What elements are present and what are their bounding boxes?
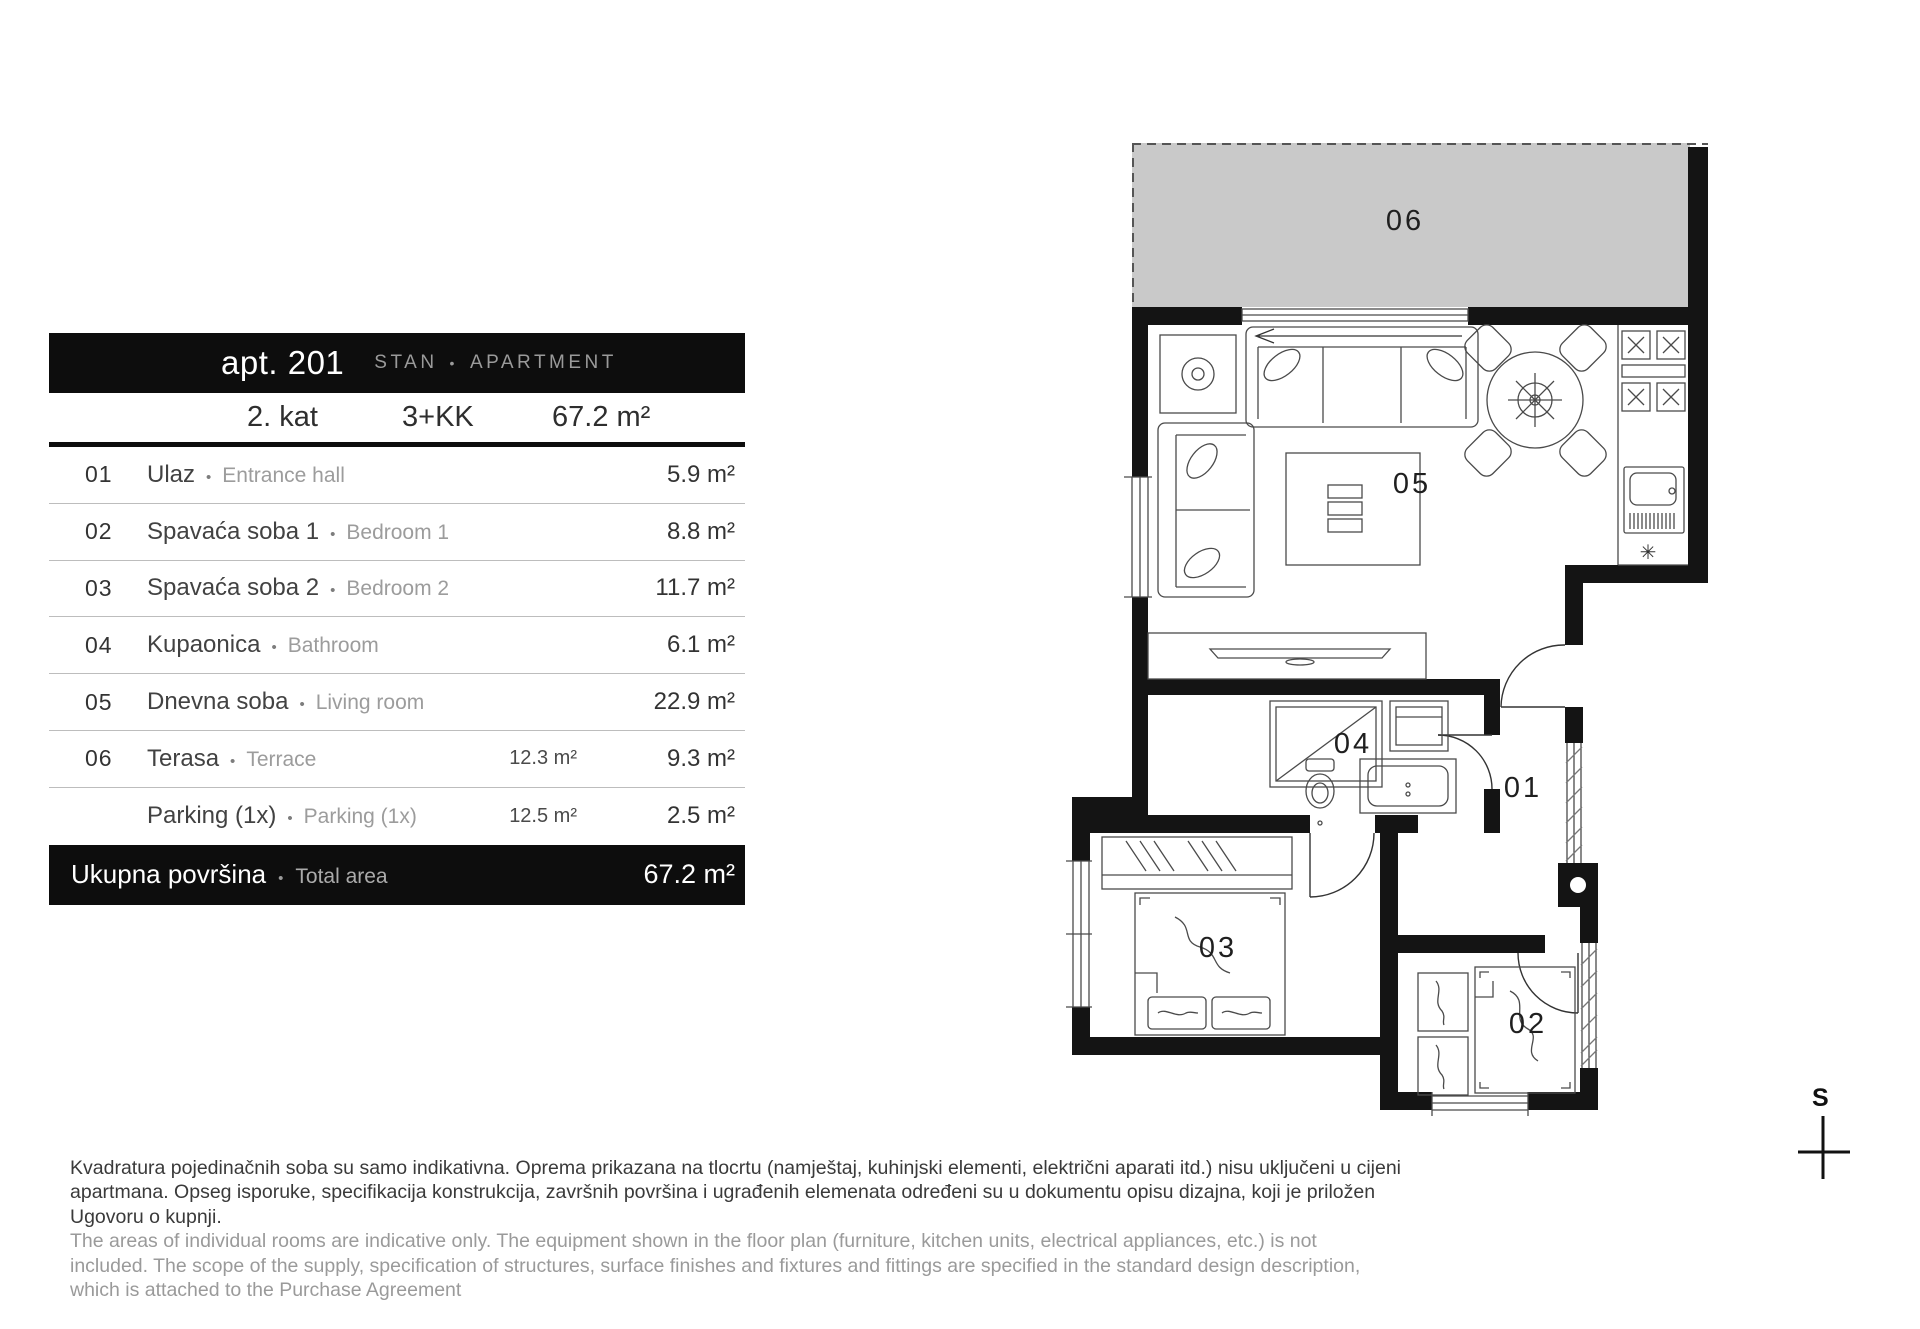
room-name-hr: Dnevna soba xyxy=(147,688,288,716)
room-area: 8.8 m² xyxy=(625,518,735,546)
apartment-type-en: APARTMENT xyxy=(470,352,617,374)
room-name-hr: Terasa xyxy=(147,745,219,773)
compass-cross-icon xyxy=(1790,1084,1880,1204)
room-number: 02 xyxy=(85,518,147,545)
room-area: 11.7 m² xyxy=(625,574,735,602)
table-row-terrace: 06 Terasa•Terrace 12.3 m² 9.3 m² xyxy=(49,731,745,788)
room-name-en: Terrace xyxy=(246,748,316,772)
room-area: 6.1 m² xyxy=(625,631,735,659)
room-name-en: Entrance hall xyxy=(222,464,345,488)
apartment-type-hr: STAN xyxy=(374,352,437,374)
bullet-separator: • xyxy=(299,696,304,713)
dishwasher-icon: ✳ xyxy=(1640,542,1657,564)
room-gross-area: 12.3 m² xyxy=(467,747,577,770)
hall-window xyxy=(1565,743,1583,863)
room-area: 22.9 m² xyxy=(625,688,735,716)
room-name-en: Living room xyxy=(316,691,425,715)
wall-column xyxy=(1570,877,1586,893)
total-area-bar: Ukupna površina•Total area 67.2 m² xyxy=(49,845,745,905)
room-name-en: Parking (1x) xyxy=(304,805,417,829)
living-room-window xyxy=(1124,477,1152,597)
room-name-hr: Ulaz xyxy=(147,461,195,489)
bullet-separator: • xyxy=(330,526,335,543)
floor-plan: ✳ xyxy=(1060,135,1760,1145)
room-number: 04 xyxy=(85,632,147,659)
room-name-en: Bedroom 2 xyxy=(346,577,449,601)
plant-table xyxy=(1160,335,1236,413)
room-name-hr: Parking (1x) xyxy=(147,802,276,830)
label-bedroom1: 02 xyxy=(1509,1008,1547,1040)
bedroom1-window xyxy=(1580,943,1598,1068)
total-label-hr: Ukupna površina xyxy=(71,859,266,890)
table-row-parking: Parking (1x)•Parking (1x) 12.5 m² 2.5 m² xyxy=(49,788,745,845)
table-row-bedroom1: 02 Spavaća soba 1•Bedroom 1 8.8 m² xyxy=(49,504,745,561)
room-area: 9.3 m² xyxy=(625,745,735,773)
bedroom2-window xyxy=(1066,861,1092,1007)
room-area: 5.9 m² xyxy=(625,461,735,489)
total-area-summary: 67.2 m² xyxy=(552,401,650,434)
table-row-entrance: 01 Ulaz•Entrance hall 5.9 m² xyxy=(49,447,745,504)
doors xyxy=(1310,645,1578,1013)
sofa-large xyxy=(1246,327,1478,427)
apartment-info-panel: apt. 201 STAN • APARTMENT 2. kat 3+KK 67… xyxy=(49,333,745,905)
total-area-value: 67.2 m² xyxy=(605,859,735,890)
layout-label: 3+KK xyxy=(402,401,552,434)
bullet-separator: • xyxy=(206,469,211,486)
room-name-hr: Spavaća soba 1 xyxy=(147,518,319,546)
disclaimer-hr: Kvadratura pojedinačnih soba su samo ind… xyxy=(70,1156,1470,1229)
label-bathroom: 04 xyxy=(1334,728,1372,760)
room-name-hr: Spavaća soba 2 xyxy=(147,574,319,602)
room-name-hr: Kupaonica xyxy=(147,631,260,659)
apartment-type: STAN • APARTMENT xyxy=(374,352,617,374)
bullet-separator: • xyxy=(230,753,235,770)
disclaimer-en: The areas of individual rooms are indica… xyxy=(70,1229,1470,1302)
tv-bench xyxy=(1148,633,1426,679)
disclaimer: Kvadratura pojedinačnih soba su samo ind… xyxy=(70,1156,1470,1302)
sofa-small xyxy=(1158,423,1254,597)
room-number: 06 xyxy=(85,745,147,772)
bed-bedroom3 xyxy=(1135,893,1285,1035)
bullet-separator: • xyxy=(271,639,276,656)
room-name-en: Bedroom 1 xyxy=(346,521,449,545)
bedroom1-door xyxy=(1518,953,1578,1013)
bullet-separator: • xyxy=(330,582,335,599)
bullet-separator: • xyxy=(450,355,458,371)
kitchen-units: ✳ xyxy=(1618,325,1688,565)
label-bedroom2: 03 xyxy=(1199,932,1237,964)
apartment-number: apt. 201 xyxy=(221,344,344,382)
apartment-header-bar: apt. 201 STAN • APARTMENT xyxy=(49,333,745,393)
room-table: 01 Ulaz•Entrance hall 5.9 m² 02 Spavaća … xyxy=(49,447,745,845)
room-gross-area: 12.5 m² xyxy=(467,805,577,828)
room-name-en: Bathroom xyxy=(288,634,379,658)
entrance-door xyxy=(1501,645,1565,707)
floor-label: 2. kat xyxy=(247,401,402,434)
apartment-summary-row: 2. kat 3+KK 67.2 m² xyxy=(49,393,745,447)
room-number: 01 xyxy=(85,461,147,488)
label-terrace: 06 xyxy=(1386,205,1424,237)
label-living-room: 05 xyxy=(1393,468,1431,500)
table-row-bathroom: 04 Kupaonica•Bathroom 6.1 m² xyxy=(49,617,745,674)
toilet xyxy=(1306,759,1334,825)
room-number: 03 xyxy=(85,575,147,602)
sliding-door xyxy=(1242,309,1468,343)
wardrobe-bed3 xyxy=(1102,837,1292,889)
wardrobe-bed2 xyxy=(1418,973,1468,1095)
bedroom2-door xyxy=(1310,833,1374,897)
bullet-separator: • xyxy=(278,870,283,887)
total-label-en: Total area xyxy=(295,865,387,889)
room-number: 05 xyxy=(85,689,147,716)
north-compass: S xyxy=(1790,1084,1880,1204)
table-row-bedroom2: 03 Spavaća soba 2•Bedroom 2 11.7 m² xyxy=(49,561,745,618)
bathroom-vanity xyxy=(1360,759,1456,813)
dining-table xyxy=(1461,321,1610,480)
kitchen-sink xyxy=(1624,467,1684,533)
label-entrance-hall: 01 xyxy=(1504,772,1542,804)
room-area: 2.5 m² xyxy=(625,802,735,830)
bathroom-door xyxy=(1438,735,1492,789)
table-row-livingroom: 05 Dnevna soba•Living room 22.9 m² xyxy=(49,674,745,731)
bullet-separator: • xyxy=(287,810,292,827)
washing-machine xyxy=(1390,701,1448,751)
